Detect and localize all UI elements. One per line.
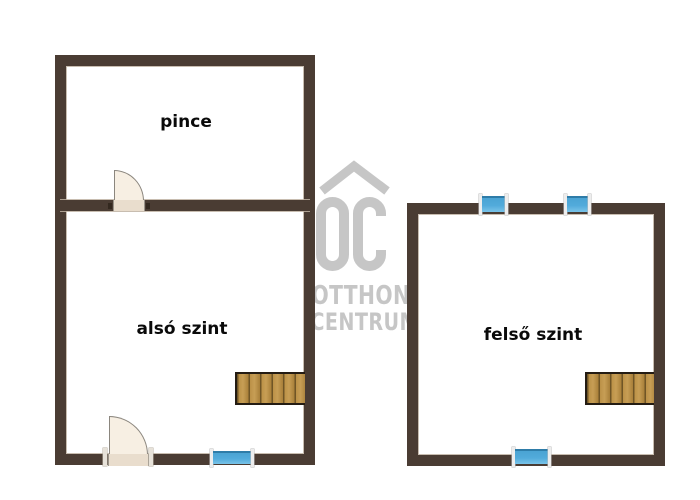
- floorplan-canvas: OTTHON CENTRUM pince alsó szint felső sz…: [0, 0, 700, 500]
- watermark-text-otthon: OTTHON: [311, 284, 392, 308]
- window-glass: [515, 449, 548, 464]
- watermark-text-centrum: CENTRUM: [310, 310, 393, 334]
- upper-level-window-icon: [564, 194, 591, 215]
- room-label-lower-level: alsó szint: [136, 319, 227, 339]
- window-glass: [213, 451, 251, 464]
- upper-level-window-icon: [512, 447, 551, 467]
- entry-door-leaf: [108, 454, 149, 466]
- watermark: OTTHON CENTRUM: [300, 160, 404, 340]
- logo-letter-c-gap: [374, 216, 396, 250]
- door-frame-tick: [108, 203, 112, 209]
- basement-door-leaf: [113, 200, 145, 211]
- door-frame-tick: [146, 203, 150, 209]
- upper-level-staircase-icon: [585, 372, 654, 405]
- door-frame-tick: [149, 448, 153, 466]
- window-glass: [567, 196, 588, 212]
- lower-level-staircase-icon: [235, 372, 305, 405]
- roof-icon: [322, 166, 387, 191]
- window-glass: [482, 196, 505, 212]
- room-label-upper-level: felső szint: [484, 325, 583, 345]
- room-label-basement: pince: [160, 112, 212, 132]
- door-frame-tick: [103, 448, 107, 466]
- otthon-centrum-logo-icon: [300, 160, 404, 280]
- upper-level-window-icon: [479, 194, 508, 215]
- lower-level-window-icon: [210, 449, 254, 467]
- logo-letter-o: [321, 202, 344, 266]
- floor-divider-wall: [60, 200, 310, 211]
